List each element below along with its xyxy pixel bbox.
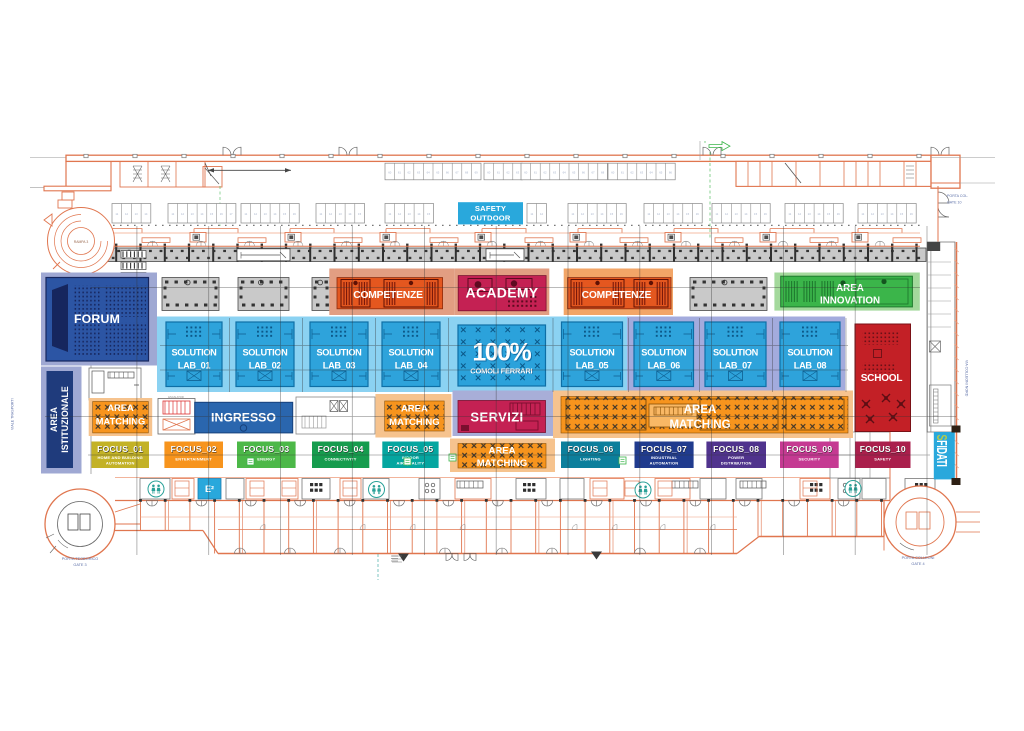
svg-text:SCHOOL: SCHOOL — [861, 373, 903, 384]
svg-text:COMOLI FERRARI: COMOLI FERRARI — [470, 366, 532, 375]
svg-text:63: 63 — [516, 171, 520, 175]
svg-text:14: 14 — [417, 212, 421, 216]
svg-text:14: 14 — [600, 212, 604, 216]
svg-text:AREA: AREA — [49, 406, 59, 432]
svg-text:MATCHING: MATCHING — [669, 419, 730, 431]
svg-text:16: 16 — [764, 212, 768, 216]
svg-text:SOLUTION: SOLUTION — [171, 348, 217, 358]
svg-text:14: 14 — [890, 212, 894, 216]
svg-text:63: 63 — [640, 171, 644, 175]
svg-text:64: 64 — [650, 171, 654, 175]
svg-text:13: 13 — [135, 212, 139, 216]
svg-text:14: 14 — [676, 212, 680, 216]
svg-text:AREA: AREA — [836, 283, 864, 294]
svg-text:ESCALATOR: ESCALATOR — [168, 395, 184, 399]
svg-text:16: 16 — [293, 212, 297, 216]
svg-text:15: 15 — [686, 212, 690, 216]
svg-text:13: 13 — [408, 212, 412, 216]
svg-text:61: 61 — [398, 171, 402, 175]
svg-text:11: 11 — [530, 212, 533, 216]
svg-text:PORTA COL.: PORTA COL. — [947, 194, 968, 198]
svg-text:13: 13 — [667, 212, 671, 216]
svg-text:FOCUS_05: FOCUS_05 — [387, 444, 433, 454]
svg-text:65: 65 — [572, 171, 576, 175]
svg-text:16: 16 — [910, 212, 914, 216]
svg-text:17: 17 — [229, 212, 233, 216]
svg-text:66: 66 — [446, 171, 450, 175]
svg-text:14: 14 — [273, 212, 277, 216]
svg-text:FOCUS_07: FOCUS_07 — [641, 444, 687, 454]
svg-text:61: 61 — [621, 171, 625, 175]
svg-text:62: 62 — [506, 171, 510, 175]
svg-text:SOLUTION: SOLUTION — [388, 348, 434, 358]
svg-text:65: 65 — [659, 171, 663, 175]
svg-text:66: 66 — [669, 171, 673, 175]
svg-text:DISTRIBUTION: DISTRIBUTION — [721, 461, 752, 466]
svg-text:LAB_08: LAB_08 — [794, 361, 827, 371]
svg-text:60: 60 — [388, 171, 392, 175]
svg-text:SOLUTION: SOLUTION — [713, 348, 759, 358]
svg-text:12: 12 — [871, 212, 875, 216]
svg-text:POWER: POWER — [728, 455, 744, 460]
svg-text:11: 11 — [571, 212, 574, 216]
svg-text:SERVIZI: SERVIZI — [470, 410, 523, 425]
svg-text:13: 13 — [591, 212, 595, 216]
svg-text:14: 14 — [200, 212, 204, 216]
svg-text:11: 11 — [171, 212, 174, 216]
svg-text:12: 12 — [329, 212, 333, 216]
svg-text:SOLUTION: SOLUTION — [569, 348, 615, 358]
svg-text:AREA: AREA — [401, 404, 428, 415]
svg-text:AUTOMATION: AUTOMATION — [650, 461, 679, 466]
svg-text:68: 68 — [601, 171, 605, 175]
svg-text:SFIDATI: SFIDATI — [934, 435, 951, 467]
svg-text:FORUM: FORUM — [74, 312, 120, 326]
svg-text:15: 15 — [283, 212, 287, 216]
svg-text:12: 12 — [254, 212, 258, 216]
svg-text:VIA COLLEONI NORD: VIA COLLEONI NORD — [965, 360, 969, 397]
svg-text:11: 11 — [647, 212, 650, 216]
svg-text:RAMPA 3: RAMPA 3 — [74, 240, 89, 244]
svg-text:12: 12 — [181, 212, 185, 216]
svg-text:AREA: AREA — [107, 403, 134, 413]
svg-text:OUTDOOR: OUTDOOR — [470, 213, 511, 222]
svg-text:15: 15 — [900, 212, 904, 216]
svg-text:SOLUTION: SOLUTION — [242, 348, 288, 358]
svg-text:PORTA TEODORICO: PORTA TEODORICO — [62, 557, 99, 561]
svg-text:11: 11 — [788, 212, 791, 216]
svg-text:12: 12 — [581, 212, 585, 216]
svg-text:LIGHTING: LIGHTING — [580, 457, 601, 462]
svg-text:11: 11 — [319, 212, 322, 216]
svg-text:12: 12 — [398, 212, 402, 216]
svg-text:15: 15 — [358, 212, 362, 216]
svg-text:60: 60 — [611, 171, 615, 175]
svg-text:14: 14 — [348, 212, 352, 216]
svg-text:SOLUTION: SOLUTION — [316, 348, 362, 358]
svg-text:13: 13 — [808, 212, 812, 216]
svg-text:LAB_04: LAB_04 — [395, 361, 429, 371]
svg-text:PORTA COLLEONI: PORTA COLLEONI — [902, 556, 935, 560]
svg-text:AUTOMATION: AUTOMATION — [106, 461, 135, 466]
svg-text:61: 61 — [534, 171, 538, 175]
svg-text:15: 15 — [827, 212, 831, 216]
svg-text:62: 62 — [407, 171, 411, 175]
svg-text:FOCUS_06: FOCUS_06 — [567, 444, 613, 454]
svg-text:GATE 4: GATE 4 — [911, 562, 924, 566]
svg-text:FOCUS_10: FOCUS_10 — [860, 444, 906, 454]
svg-text:LAB_03: LAB_03 — [323, 361, 356, 371]
svg-text:12: 12 — [125, 212, 129, 216]
svg-text:11: 11 — [861, 212, 864, 216]
svg-text:ACADEMY: ACADEMY — [466, 285, 539, 301]
svg-text:64: 64 — [427, 171, 431, 175]
svg-text:60: 60 — [487, 171, 491, 175]
svg-text:16: 16 — [220, 212, 224, 216]
svg-text:LAB_07: LAB_07 — [719, 361, 752, 371]
svg-text:12: 12 — [798, 212, 802, 216]
svg-text:68: 68 — [465, 171, 469, 175]
svg-text:63: 63 — [553, 171, 557, 175]
svg-text:11: 11 — [388, 212, 391, 216]
svg-text:INDUSTRIAL: INDUSTRIAL — [651, 455, 678, 460]
svg-text:11: 11 — [244, 212, 247, 216]
svg-text:FOCUS_09: FOCUS_09 — [786, 444, 832, 454]
svg-text:ENTERTAINMENT: ENTERTAINMENT — [175, 457, 212, 462]
svg-text:16: 16 — [837, 212, 841, 216]
svg-text:16: 16 — [696, 212, 700, 216]
svg-text:x: x — [704, 140, 706, 144]
svg-text:14: 14 — [817, 212, 821, 216]
svg-text:MATCHING: MATCHING — [477, 458, 527, 469]
svg-text:FOCUS_08: FOCUS_08 — [713, 444, 759, 454]
svg-text:13: 13 — [881, 212, 885, 216]
svg-text:COMPETENZE: COMPETENZE — [353, 290, 423, 301]
svg-text:FOCUS_02: FOCUS_02 — [171, 444, 217, 454]
svg-text:MATCHING: MATCHING — [96, 417, 145, 427]
svg-text:SOLUTION: SOLUTION — [787, 348, 833, 358]
svg-text:13: 13 — [264, 212, 268, 216]
svg-text:15: 15 — [610, 212, 614, 216]
svg-text:GATE 3: GATE 3 — [73, 563, 86, 567]
svg-text:67: 67 — [591, 171, 595, 175]
svg-text:11: 11 — [115, 212, 118, 216]
svg-text:FOCUS_03: FOCUS_03 — [243, 444, 289, 454]
svg-text:63: 63 — [417, 171, 421, 175]
svg-text:65: 65 — [436, 171, 440, 175]
svg-text:SOLUTION: SOLUTION — [641, 348, 687, 358]
svg-text:61: 61 — [497, 171, 501, 175]
svg-text:ISTITUZIONALE: ISTITUZIONALE — [60, 386, 70, 453]
svg-text:13: 13 — [191, 212, 195, 216]
svg-text:GATE 10: GATE 10 — [947, 201, 962, 205]
svg-text:LAB_05: LAB_05 — [576, 361, 609, 371]
svg-text:14: 14 — [144, 212, 148, 216]
svg-text:60: 60 — [524, 171, 528, 175]
svg-text:LAB_02: LAB_02 — [249, 361, 282, 371]
svg-text:MATCHING: MATCHING — [389, 417, 439, 428]
svg-text:FOCUS_04: FOCUS_04 — [318, 444, 364, 454]
svg-text:16: 16 — [620, 212, 624, 216]
svg-text:66: 66 — [582, 171, 586, 175]
svg-text:11: 11 — [715, 212, 718, 216]
svg-text:INNOVATION: INNOVATION — [820, 296, 880, 307]
svg-text:SAFETY: SAFETY — [874, 457, 891, 462]
svg-text:12: 12 — [657, 212, 661, 216]
svg-text:E²: E² — [205, 484, 214, 494]
svg-text:VIALE TRASPORTI: VIALE TRASPORTI — [11, 398, 15, 430]
svg-text:67: 67 — [455, 171, 459, 175]
svg-text:15: 15 — [427, 212, 431, 216]
svg-text:100%: 100% — [472, 339, 531, 367]
svg-text:COMPETENZE: COMPETENZE — [582, 290, 652, 301]
svg-text:15: 15 — [210, 212, 214, 216]
svg-text:12: 12 — [540, 212, 544, 216]
svg-text:14: 14 — [744, 212, 748, 216]
svg-text:62: 62 — [630, 171, 634, 175]
svg-text:64: 64 — [563, 171, 567, 175]
svg-text:69: 69 — [475, 171, 479, 175]
svg-text:HOME AND BUILDING: HOME AND BUILDING — [97, 455, 142, 460]
svg-text:LAB_01: LAB_01 — [178, 361, 211, 371]
svg-text:13: 13 — [735, 212, 739, 216]
svg-text:FOCUS_01: FOCUS_01 — [97, 444, 143, 454]
svg-text:ENERGY: ENERGY — [257, 457, 275, 462]
svg-text:13: 13 — [339, 212, 343, 216]
svg-text:SAFETY: SAFETY — [475, 204, 506, 213]
svg-text:15: 15 — [754, 212, 758, 216]
svg-text:INGRESSO: INGRESSO — [211, 411, 276, 425]
svg-text:SECURITY: SECURITY — [798, 457, 820, 462]
svg-text:62: 62 — [543, 171, 547, 175]
svg-text:LAB_06: LAB_06 — [648, 361, 681, 371]
svg-text:12: 12 — [725, 212, 729, 216]
